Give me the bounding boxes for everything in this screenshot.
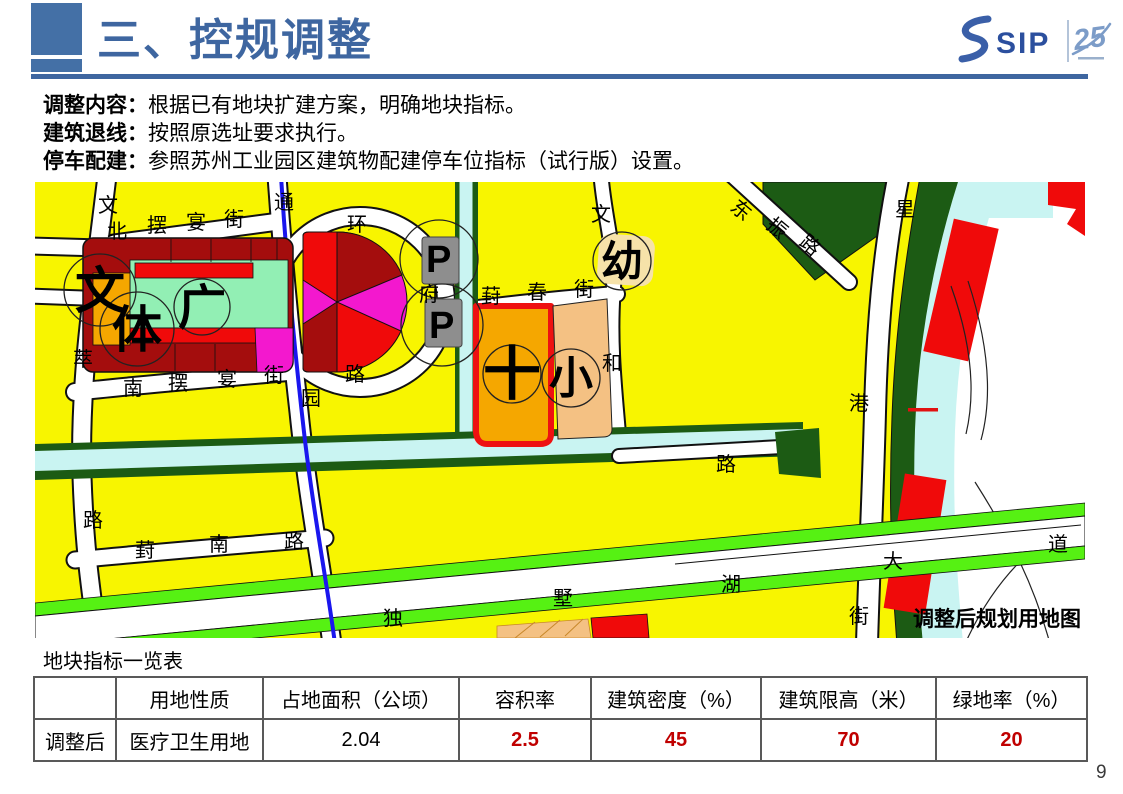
sip-brand-text: SIP xyxy=(996,27,1050,60)
map-label: 环 xyxy=(347,214,367,236)
map-label: 春 xyxy=(527,281,547,304)
map-label: 街 xyxy=(849,605,869,628)
map-label: P xyxy=(426,239,451,281)
intro-body-2: 按照原选址要求执行。 xyxy=(148,122,358,145)
slide: 三、控规调整 SIP 25 调整内容：根据已有地块扩建方案，明确地块指标。 建筑… xyxy=(0,0,1123,794)
anniversary-tagline-bar xyxy=(1078,57,1104,60)
title-accent-bar xyxy=(31,59,82,72)
cell-green: 20 xyxy=(936,719,1087,761)
map-label: 南 xyxy=(209,533,229,556)
intro-label-1: 调整内容： xyxy=(43,94,148,117)
intro-line-2: 建筑退线：按照原选址要求执行。 xyxy=(43,120,694,148)
map-label: 十 xyxy=(483,342,541,407)
header-rule xyxy=(31,74,1088,79)
map-caption: 调整后规划用地图 xyxy=(913,607,1081,631)
map-label: 街 xyxy=(224,208,244,231)
header-cell-land-use: 用地性质 xyxy=(116,677,263,719)
header-cell-blank xyxy=(34,677,116,719)
cell-row-label: 调整后 xyxy=(34,719,116,761)
map-label: 通 xyxy=(274,191,294,214)
map-label: 萃 xyxy=(73,348,93,371)
intro-body-3: 参照苏州工业园区建筑物配建停车位指标（试行版）设置。 xyxy=(148,150,694,173)
cell-land-use: 医疗卫生用地 xyxy=(116,719,263,761)
sip-logo: SIP 25 xyxy=(952,12,1112,70)
map-label: 摆 xyxy=(168,372,188,395)
table-caption: 地块指标一览表 xyxy=(43,645,183,674)
map-label: 园 xyxy=(301,388,321,410)
map-road-east-leg xyxy=(619,446,799,456)
page-title: 三、控规调整 xyxy=(97,4,373,68)
map-label: P xyxy=(429,305,454,347)
map-label: 广 xyxy=(178,282,226,335)
map-label: 府 xyxy=(419,283,439,306)
table-header-row: 用地性质 占地面积（公顷） 容积率 建筑密度（%） 建筑限高（米） 绿地率（%） xyxy=(34,677,1087,719)
intro-label-2: 建筑退线： xyxy=(43,122,148,145)
map-label: 街 xyxy=(574,278,594,301)
map-label: 道 xyxy=(1048,533,1068,556)
map-label: 湖 xyxy=(721,573,741,596)
map-label: 文 xyxy=(98,194,118,217)
map-label: 宴 xyxy=(217,368,237,391)
map-label: 文 xyxy=(591,203,611,226)
map-label: 幼 xyxy=(601,238,643,285)
map-label: 星 xyxy=(895,199,915,221)
map-label: 小 xyxy=(549,354,593,403)
intro-text: 调整内容：根据已有地块扩建方案，明确地块指标。 建筑退线：按照原选址要求执行。 … xyxy=(43,92,694,176)
intro-line-3: 停车配建：参照苏州工业园区建筑物配建停车位指标（试行版）设置。 xyxy=(43,148,694,176)
table-data-row: 调整后 医疗卫生用地 2.04 2.5 45 70 20 xyxy=(34,719,1087,761)
header-cell-far: 容积率 xyxy=(459,677,591,719)
intro-line-1: 调整内容：根据已有地块扩建方案，明确地块指标。 xyxy=(43,92,694,120)
map-label: 北 xyxy=(107,220,127,243)
map-label: 街 xyxy=(264,364,284,387)
title-accent-square xyxy=(31,3,82,55)
sip-swoosh-icon xyxy=(962,19,988,59)
map-label: 和 xyxy=(602,352,622,375)
map-label: 墅 xyxy=(553,587,573,610)
map-label: 摆 xyxy=(147,214,167,237)
intro-label-3: 停车配建： xyxy=(43,150,148,173)
cell-far: 2.5 xyxy=(459,719,591,761)
cell-density: 45 xyxy=(591,719,761,761)
map-label: 宴 xyxy=(186,211,206,234)
map-label: 葑 xyxy=(481,285,501,308)
page-number: 9 xyxy=(1096,762,1107,784)
map-label: 路 xyxy=(83,509,103,532)
map-label: 体 xyxy=(112,302,162,358)
map-label: 路 xyxy=(716,453,736,476)
map-label: 路 xyxy=(345,363,365,386)
cell-height: 70 xyxy=(761,719,936,761)
header-cell-area: 占地面积（公顷） xyxy=(263,677,459,719)
header-cell-height: 建筑限高（米） xyxy=(761,677,936,719)
intro-body-1: 根据已有地块扩建方案，明确地块指标。 xyxy=(148,94,526,117)
map-label: 南 xyxy=(123,377,143,400)
map-green-blob xyxy=(775,428,821,478)
map-label: 港 xyxy=(849,392,869,415)
anniversary-mark: 25 xyxy=(1071,21,1110,60)
cell-area: 2.04 xyxy=(263,719,459,761)
map-label: 独 xyxy=(383,607,403,630)
map-label: 葑 xyxy=(135,539,155,562)
planning-map: 文北摆宴街通环府路园萃路南摆宴街葑春街文和路东振路星港街葑南路独墅湖大道文体广P… xyxy=(35,182,1085,638)
header-cell-green: 绿地率（%） xyxy=(936,677,1087,719)
parcel-indicator-table: 用地性质 占地面积（公顷） 容积率 建筑密度（%） 建筑限高（米） 绿地率（%）… xyxy=(33,676,1088,762)
map-label: 大 xyxy=(883,550,903,573)
header-cell-density: 建筑密度（%） xyxy=(591,677,761,719)
map-label: 路 xyxy=(284,530,304,553)
